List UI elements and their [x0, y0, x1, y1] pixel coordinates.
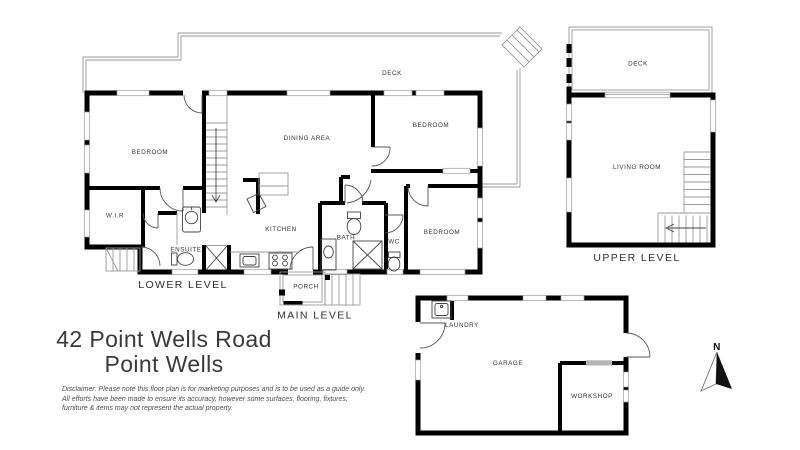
- upper-staircase: [658, 152, 710, 243]
- compass-right-blade: [716, 352, 732, 389]
- main-deck-outline: [83, 27, 542, 187]
- stair-shower: [206, 246, 227, 271]
- disclaimer-line2: All efforts have been made to ensure its…: [62, 395, 382, 405]
- north-label: N: [713, 342, 721, 353]
- room-label-deck-main: DECK: [382, 70, 402, 77]
- room-label-porch: PORCH: [293, 284, 319, 291]
- room-label-bedroom-lower: BEDROOM: [132, 149, 168, 156]
- room-label-workshop: WORKSHOP: [571, 393, 613, 400]
- wc-fixtures: [388, 252, 400, 271]
- lower-entry-steps: [106, 248, 140, 271]
- room-label-kitchen: KITCHEN: [265, 226, 297, 233]
- address-line2: Point Wells: [24, 352, 304, 377]
- property-address: 42 Point Wells Road Point Wells: [24, 327, 304, 377]
- workshop-wardrobe-strip: [586, 360, 612, 365]
- room-label-wc: WC: [388, 239, 400, 246]
- room-label-bath: BATH: [337, 235, 356, 242]
- main-staircase: [206, 95, 227, 215]
- room-label-ensuite: ENSUITE: [170, 247, 201, 254]
- main-house-walls: [87, 93, 480, 272]
- garage-plan: LAUNDRY GARAGE WORKSHOP: [415, 295, 650, 433]
- room-label-dining-area: DINING AREA: [284, 135, 331, 142]
- room-label-living-room: LIVING ROOM: [613, 164, 661, 171]
- floor-plan-canvas: DECK BEDROOM W.I.R ENSUITE DINING AREA K…: [0, 0, 800, 450]
- room-label-laundry: LAUNDRY: [445, 322, 479, 329]
- upper-level-plan: DECK LIVING ROOM UPPER LEVEL: [566, 27, 715, 264]
- room-label-bedroom-top: BEDROOM: [413, 122, 449, 129]
- disclaimer-line3: furniture & items may not represent the …: [62, 404, 382, 414]
- disclaimer-line1: Disclaimer: Please note this floor plan …: [62, 385, 382, 395]
- kitchen-fixtures: [230, 173, 297, 269]
- porch: [279, 272, 360, 305]
- ensuite-fixtures: [172, 207, 201, 265]
- stove: [269, 253, 292, 269]
- laundry-fixtures: [432, 301, 451, 318]
- level-label-upper: UPPER LEVEL: [593, 252, 680, 264]
- room-label-bedroom-right: BEDROOM: [424, 229, 460, 236]
- north-compass: N: [701, 342, 732, 391]
- kitchen-island: [259, 173, 288, 195]
- level-label-main: MAIN LEVEL: [277, 310, 353, 322]
- disclaimer-text: Disclaimer: Please note this floor plan …: [62, 385, 382, 414]
- floor-plan-page: DECK BEDROOM W.I.R ENSUITE DINING AREA K…: [0, 0, 800, 450]
- compass-left-blade: [701, 352, 717, 391]
- level-label-lower: LOWER LEVEL: [138, 279, 228, 291]
- room-label-garage: GARAGE: [493, 360, 523, 367]
- address-line1: 42 Point Wells Road: [24, 327, 304, 352]
- deck-corner-stairs: [502, 27, 542, 67]
- room-label-deck-upper: DECK: [628, 61, 648, 68]
- room-label-wir: W.I.R: [106, 213, 124, 220]
